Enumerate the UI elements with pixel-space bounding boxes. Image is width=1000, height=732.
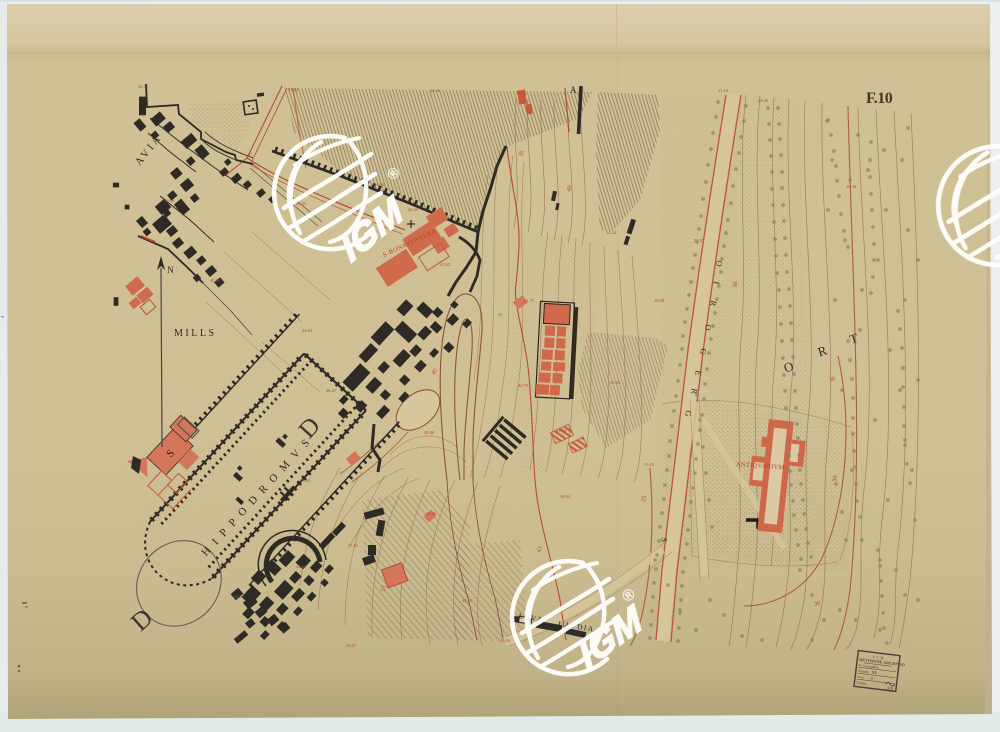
svg-text:24.26: 24.26 bbox=[430, 88, 441, 93]
svg-text:26.44: 26.44 bbox=[846, 184, 857, 189]
svg-text:44.63: 44.63 bbox=[296, 564, 307, 569]
svg-text:47.81: 47.81 bbox=[348, 543, 358, 548]
svg-text:33.94: 33.94 bbox=[610, 380, 621, 385]
svg-text:47: 47 bbox=[248, 152, 253, 157]
svg-text:44.50: 44.50 bbox=[138, 84, 149, 89]
svg-text:41.56: 41.56 bbox=[556, 428, 567, 433]
svg-text:F.10: F.10 bbox=[866, 90, 893, 107]
svg-text:44.02: 44.02 bbox=[302, 328, 312, 333]
svg-text:21.18: 21.18 bbox=[718, 88, 729, 93]
svg-text:48.89: 48.89 bbox=[210, 278, 221, 283]
svg-text:46.06: 46.06 bbox=[500, 638, 511, 643]
svg-text:46.47: 46.47 bbox=[326, 388, 337, 393]
svg-text:33.18: 33.18 bbox=[644, 462, 655, 467]
svg-text:24.26: 24.26 bbox=[758, 98, 769, 103]
svg-text:42.75: 42.75 bbox=[518, 383, 529, 388]
svg-text:359: 359 bbox=[887, 686, 893, 691]
svg-text:43: 43 bbox=[498, 312, 503, 317]
svg-text:50: 50 bbox=[832, 475, 839, 482]
svg-text:43.66: 43.66 bbox=[426, 511, 437, 516]
svg-text:25: 25 bbox=[641, 495, 648, 502]
svg-text:40.86: 40.86 bbox=[424, 430, 435, 435]
svg-text:30.08: 30.08 bbox=[654, 298, 665, 303]
svg-text:XX: XX bbox=[872, 670, 878, 675]
svg-text:43.62: 43.62 bbox=[440, 262, 450, 267]
svg-text:39.94: 39.94 bbox=[560, 494, 571, 499]
svg-text:43.5: 43.5 bbox=[234, 594, 243, 599]
svg-text:44.36: 44.36 bbox=[408, 207, 419, 212]
svg-text:44.80: 44.80 bbox=[374, 182, 385, 187]
svg-text:N: N bbox=[167, 266, 174, 276]
svg-text:45.64: 45.64 bbox=[288, 87, 299, 92]
svg-text:A: A bbox=[570, 85, 577, 95]
svg-text:MILLS: MILLS bbox=[174, 328, 217, 339]
svg-text:46.66: 46.66 bbox=[164, 198, 175, 203]
svg-text:44.81: 44.81 bbox=[462, 598, 472, 603]
svg-text:41.75: 41.75 bbox=[524, 298, 535, 303]
svg-text:xxx: xxx bbox=[873, 665, 879, 670]
svg-text:44.63: 44.63 bbox=[300, 478, 311, 483]
svg-text:45.07: 45.07 bbox=[346, 643, 357, 648]
svg-text:34.44: 34.44 bbox=[606, 230, 617, 235]
svg-text:42.36: 42.36 bbox=[516, 91, 527, 96]
